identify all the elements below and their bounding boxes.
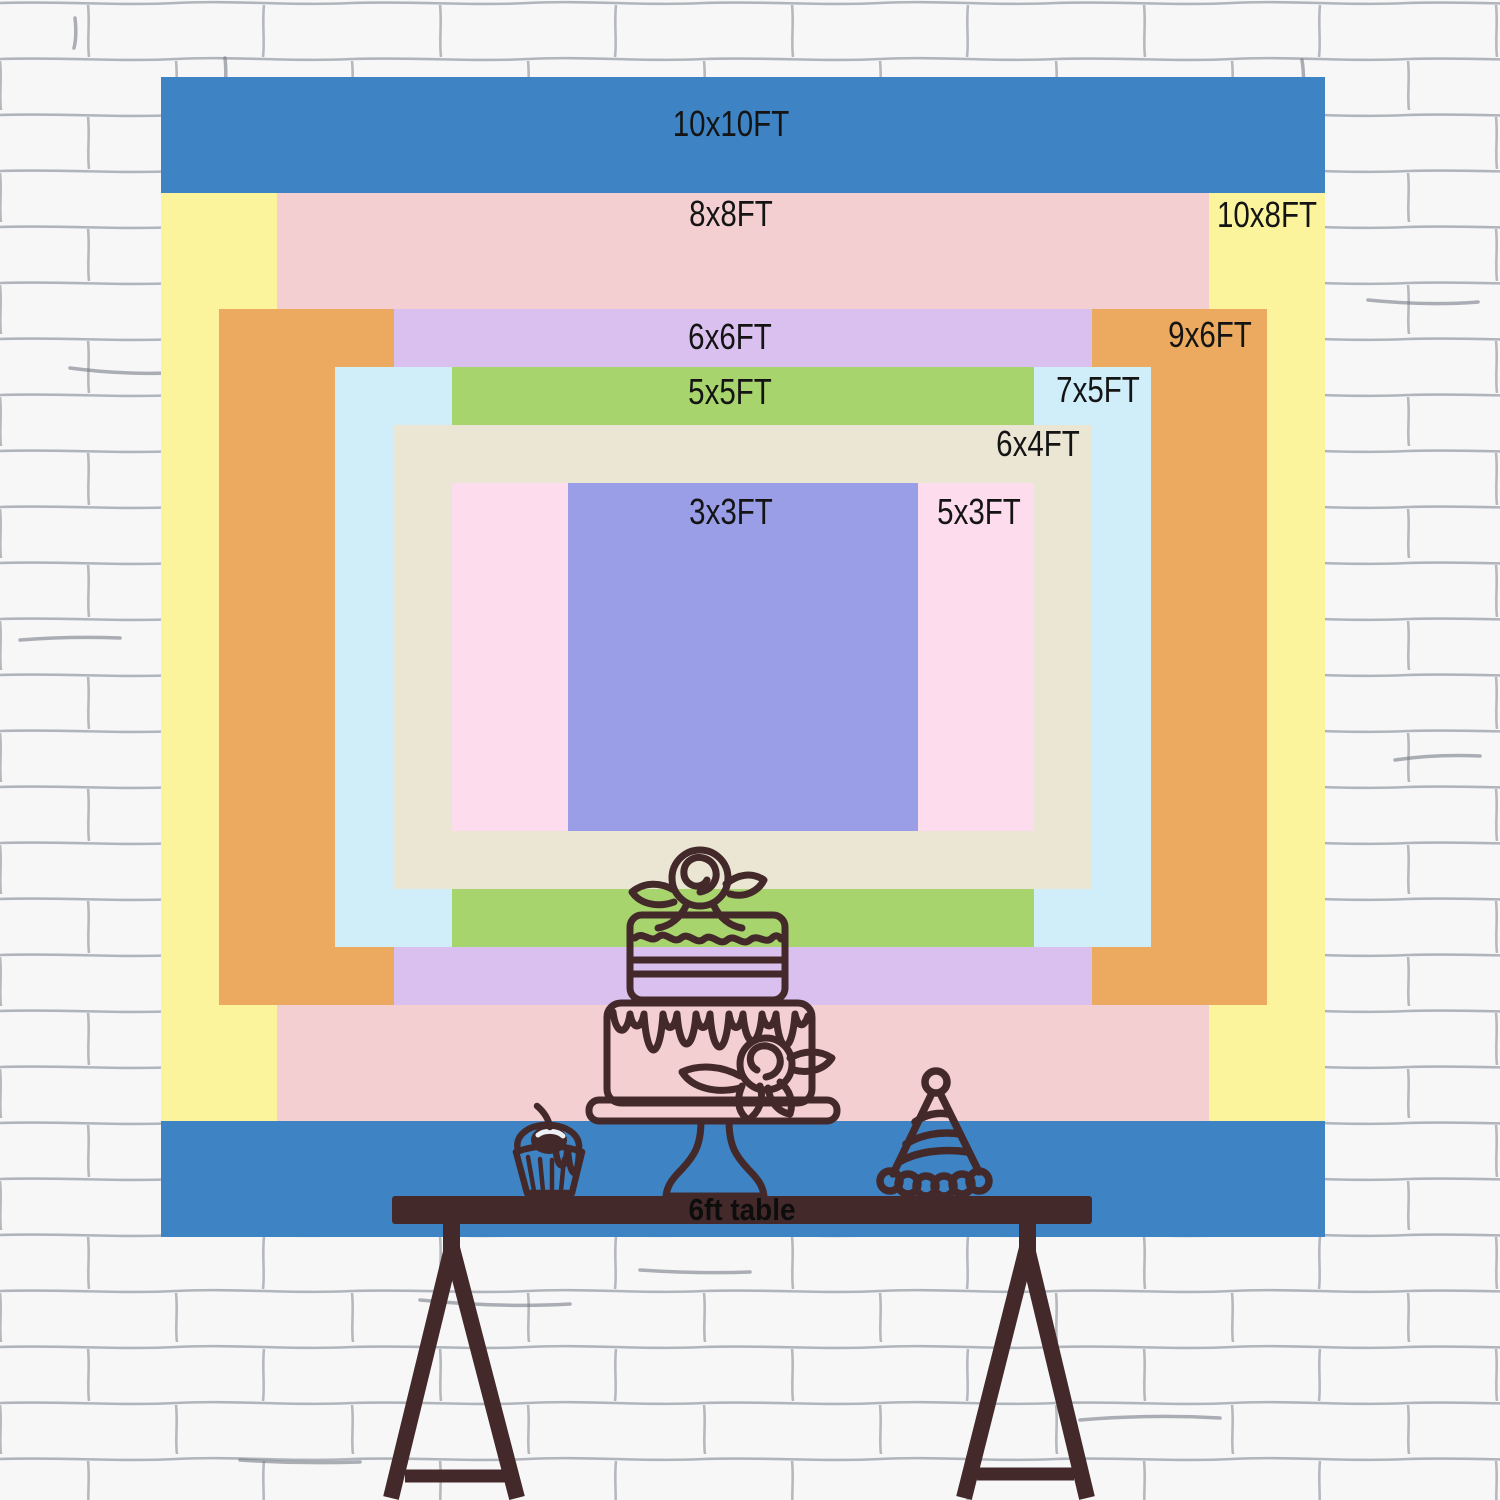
size-label-10x10ft: 10x10FT: [673, 103, 790, 145]
backdrop-size-chart: 10x10FT 8x8FT 10x8FT 6x6FT 9x6FT 5x5FT 7…: [161, 77, 1325, 1237]
size-label-3x3ft: 3x3FT: [689, 491, 773, 533]
size-label-9x6ft: 9x6FT: [1168, 314, 1252, 356]
size-label-5x3ft: 5x3FT: [937, 491, 1021, 533]
size-rect-3x3ft: [568, 483, 918, 831]
size-label-6x6ft: 6x6FT: [688, 316, 772, 358]
size-label-7x5ft: 7x5FT: [1056, 369, 1140, 411]
scene: 10x10FT 8x8FT 10x8FT 6x6FT 9x6FT 5x5FT 7…: [0, 0, 1500, 1500]
size-label-8x8ft: 8x8FT: [689, 193, 773, 235]
size-label-10x8ft: 10x8FT: [1217, 194, 1317, 236]
size-label-6x4ft: 6x4FT: [996, 423, 1080, 465]
table-size-label: 6ft table: [689, 1192, 796, 1228]
size-label-5x5ft: 5x5FT: [688, 371, 772, 413]
